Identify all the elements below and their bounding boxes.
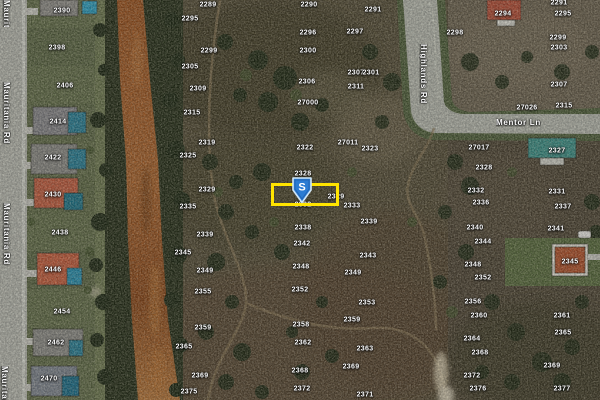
marker-letter: S bbox=[298, 182, 305, 194]
property-marker-pin[interactable]: S bbox=[290, 175, 314, 205]
map-canvas[interactable]: 2289229522992305230923152319232523292335… bbox=[0, 0, 600, 400]
